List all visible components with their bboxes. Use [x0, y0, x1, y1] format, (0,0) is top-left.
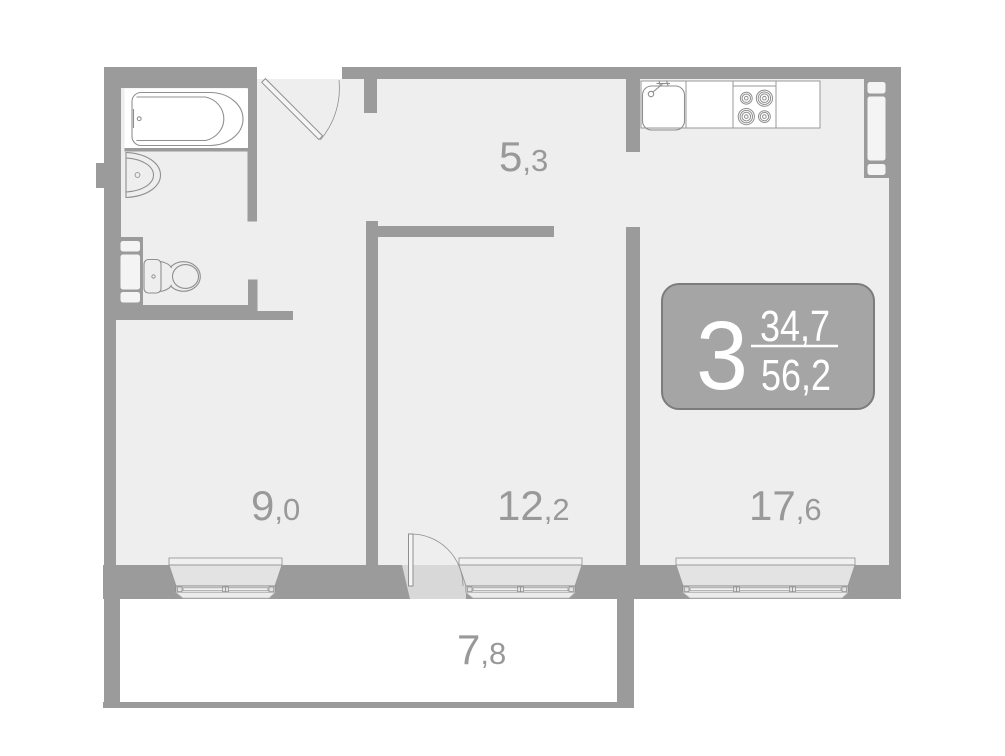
svg-text:34,7: 34,7	[760, 302, 830, 351]
svg-text:56,2: 56,2	[761, 351, 831, 400]
svg-text:3: 3	[696, 301, 748, 410]
